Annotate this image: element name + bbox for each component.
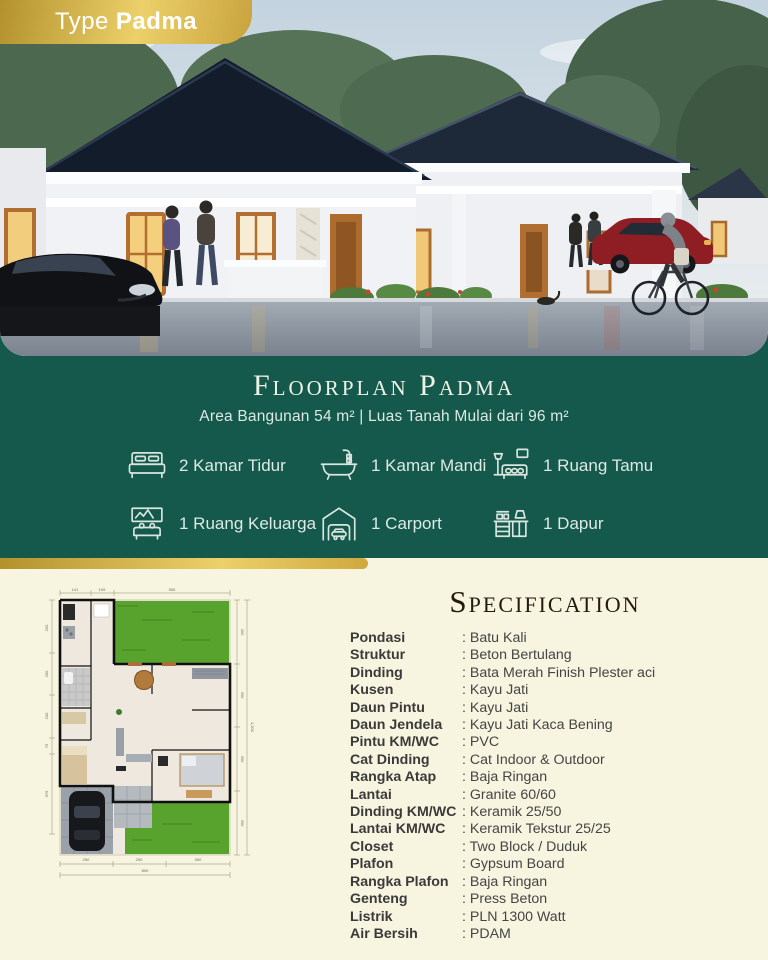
spec-value: Keramik Tekstur 25/25 — [462, 821, 611, 838]
spec-value: Granite 60/60 — [462, 787, 556, 804]
spec-row: Air BersihPDAM — [350, 926, 740, 943]
feature-item: 1 Carport — [318, 500, 490, 548]
spec-row: LantaiGranite 60/60 — [350, 787, 740, 804]
type-badge: Type Padma — [0, 0, 252, 44]
svg-text:250: 250 — [83, 857, 90, 862]
spec-label: Kusen — [350, 682, 462, 699]
feature-item: 1 Kamar Mandi — [318, 442, 490, 490]
spec-label: Plafon — [350, 856, 462, 873]
spec-value: Bata Merah Finish Plester aci — [462, 665, 655, 682]
spec-label: Pintu KM/WC — [350, 734, 462, 751]
spec-label: Lantai KM/WC — [350, 821, 462, 838]
svg-text:75: 75 — [44, 743, 49, 748]
feature-item: 1 Ruang Keluarga — [126, 500, 318, 548]
bathtub-icon — [318, 446, 360, 486]
spec-value: Baja Ringan — [462, 874, 547, 891]
spec-label: Air Bersih — [350, 926, 462, 943]
svg-text:300: 300 — [195, 857, 202, 862]
spec-row: Dinding KM/WCKeramik 25/50 — [350, 804, 740, 821]
spec-label: Listrik — [350, 909, 462, 926]
spec-value: Keramik 25/50 — [462, 804, 561, 821]
black-car — [0, 254, 162, 336]
svg-text:141: 141 — [72, 587, 79, 592]
spec-label: Genteng — [350, 891, 462, 908]
spec-label: Dinding — [350, 665, 462, 682]
spec-value: Kayu Jati — [462, 682, 528, 699]
spec-row: GentengPress Beton — [350, 891, 740, 908]
feature-label: 1 Kamar Mandi — [371, 456, 486, 476]
feature-label: 1 Carport — [371, 514, 442, 534]
spec-value: PDAM — [462, 926, 511, 943]
feature-item: 1 Ruang Tamu — [490, 442, 650, 490]
model-name: Padma — [116, 8, 197, 36]
spec-value: Baja Ringan — [462, 769, 547, 786]
sofa-icon — [490, 446, 532, 486]
svg-text:300: 300 — [240, 756, 245, 763]
svg-text:300: 300 — [240, 692, 245, 699]
spec-row: Rangka PlafonBaja Ringan — [350, 874, 740, 891]
spec-row: Lantai KM/WCKeramik Tekstur 25/25 — [350, 821, 740, 838]
spec-row: ClosetTwo Block / Duduk — [350, 839, 740, 856]
floorplan-svg: 141 109 550 250 200 200 75 375 300 300 3… — [32, 580, 256, 932]
svg-text:1,200: 1,200 — [250, 722, 255, 733]
bathroom — [62, 668, 90, 706]
spec-value: Two Block / Duduk — [462, 839, 587, 856]
feature-item: 1 Dapur — [490, 500, 650, 548]
spec-label: Daun Pintu — [350, 700, 462, 717]
bottom-section: 141 109 550 250 200 200 75 375 300 300 3… — [0, 558, 768, 960]
gold-divider-bar — [0, 558, 368, 569]
specification-table: PondasiBatu Kali StrukturBeton Bertulang… — [350, 630, 740, 943]
svg-text:800: 800 — [142, 868, 149, 873]
svg-text:109: 109 — [99, 587, 106, 592]
spec-row: PlafonGypsum Board — [350, 856, 740, 873]
svg-text:300: 300 — [240, 820, 245, 827]
features-grid: 2 Kamar Tidur 1 Kamar Mandi 1 Ruang Tamu… — [126, 442, 768, 548]
feature-label: 2 Kamar Tidur — [179, 456, 286, 476]
family-room-icon — [126, 504, 168, 544]
spec-row: Pintu KM/WCPVC — [350, 734, 740, 751]
specification-panel: Specification PondasiBatu Kali StrukturB… — [350, 580, 768, 943]
carport-icon — [318, 504, 360, 544]
spec-value: Kayu Jati — [462, 700, 528, 717]
spec-row: ListrikPLN 1300 Watt — [350, 909, 740, 926]
floorplan-drawing: 141 109 550 250 200 200 75 375 300 300 3… — [0, 580, 350, 943]
floorplan-subtitle: Area Bangunan 54 m² | Luas Tanah Mulai d… — [0, 408, 768, 426]
svg-text:250: 250 — [44, 624, 49, 631]
svg-text:375: 375 — [44, 790, 49, 797]
spec-row: Rangka AtapBaja Ringan — [350, 769, 740, 786]
spec-label: Lantai — [350, 787, 462, 804]
bed-icon — [126, 446, 168, 486]
spec-value: Batu Kali — [462, 630, 527, 647]
feature-label: 1 Ruang Keluarga — [179, 514, 316, 534]
spec-row: StrukturBeton Bertulang — [350, 647, 740, 664]
svg-text:300: 300 — [240, 629, 245, 636]
spec-row: DindingBata Merah Finish Plester aci — [350, 665, 740, 682]
spec-row: KusenKayu Jati — [350, 682, 740, 699]
hero-photo: Type Padma — [0, 0, 768, 356]
type-label: Type — [55, 8, 109, 36]
feature-label: 1 Ruang Tamu — [543, 456, 653, 476]
feature-label: 1 Dapur — [543, 514, 603, 534]
spec-value: Kayu Jati Kaca Bening — [462, 717, 613, 734]
top-section: Type Padma Floorplan Padma Area Bangunan… — [0, 0, 768, 558]
spec-label: Cat Dinding — [350, 752, 462, 769]
spec-row: Cat DindingCat Indoor & Outdoor — [350, 752, 740, 769]
spec-value: Cat Indoor & Outdoor — [462, 752, 605, 769]
feature-item: 2 Kamar Tidur — [126, 442, 318, 490]
spec-row: Daun PintuKayu Jati — [350, 700, 740, 717]
house-render-illustration — [0, 0, 768, 356]
svg-text:200: 200 — [44, 712, 49, 719]
floorplan-header: Floorplan Padma Area Bangunan 54 m² | Lu… — [0, 356, 768, 426]
spec-label: Closet — [350, 839, 462, 856]
kitchen-icon — [490, 504, 532, 544]
bedroom-left — [62, 712, 87, 784]
svg-text:550: 550 — [169, 587, 176, 592]
spec-value: Gypsum Board — [462, 856, 565, 873]
specification-title: Specification — [350, 584, 740, 620]
spec-label: Rangka Plafon — [350, 874, 462, 891]
svg-text:250: 250 — [136, 857, 143, 862]
spec-row: PondasiBatu Kali — [350, 630, 740, 647]
spec-label: Struktur — [350, 647, 462, 664]
spec-label: Dinding KM/WC — [350, 804, 462, 821]
spec-row: Daun JendelaKayu Jati Kaca Bening — [350, 717, 740, 734]
floorplan-title: Floorplan Padma — [0, 371, 768, 401]
spec-value: PVC — [462, 734, 499, 751]
spec-value: Beton Bertulang — [462, 647, 572, 664]
spec-value: PLN 1300 Watt — [462, 909, 566, 926]
svg-text:200: 200 — [44, 670, 49, 677]
spec-label: Daun Jendela — [350, 717, 462, 734]
spec-label: Pondasi — [350, 630, 462, 647]
spec-label: Rangka Atap — [350, 769, 462, 786]
spec-value: Press Beton — [462, 891, 547, 908]
